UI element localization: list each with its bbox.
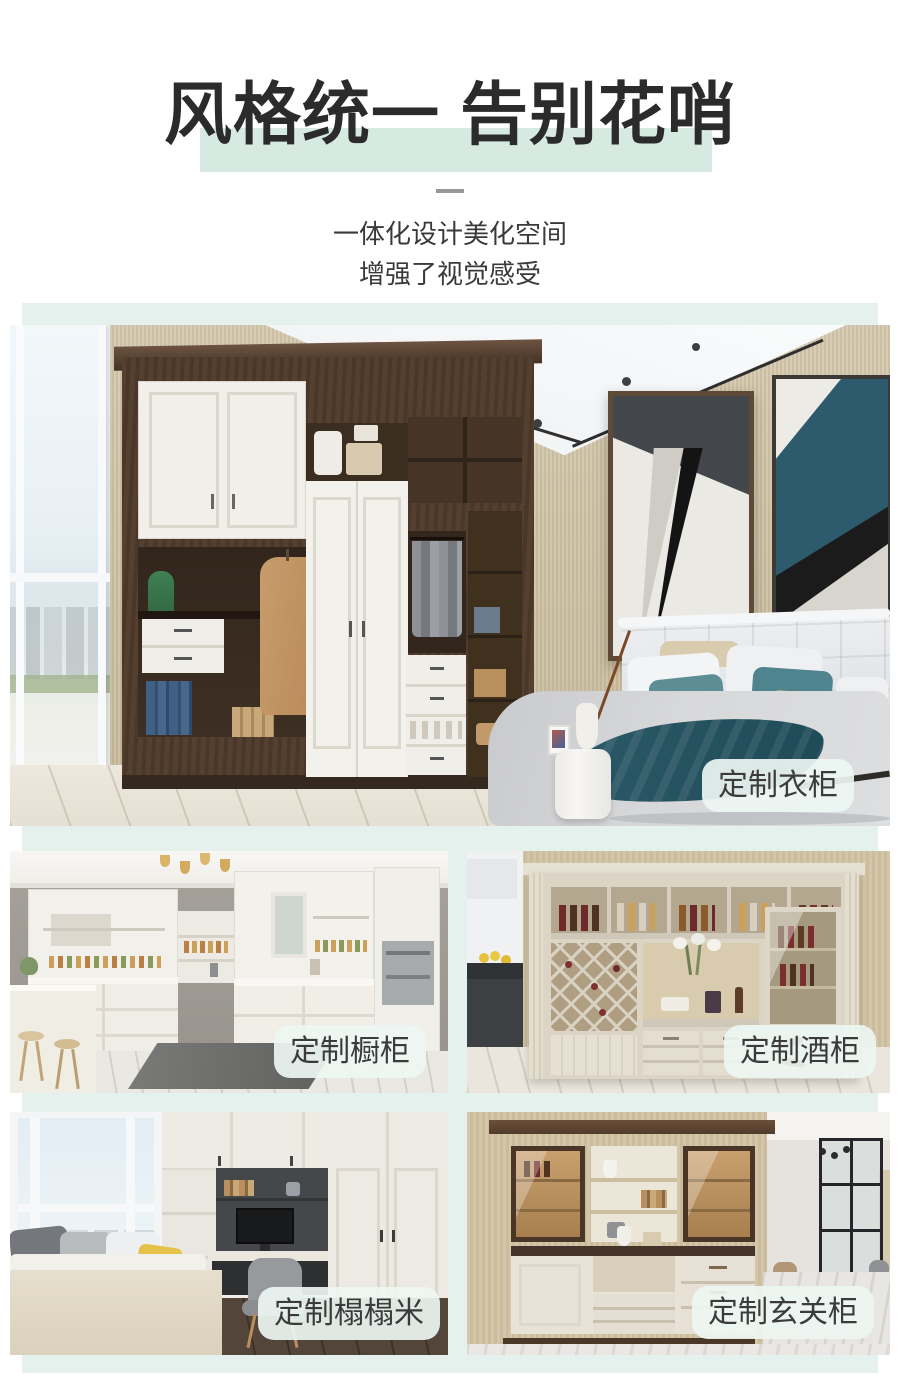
wine-bottle-dot [565, 961, 572, 968]
counter-decor [310, 959, 320, 975]
pendant-light [160, 855, 170, 867]
shelf-line [216, 1198, 328, 1201]
drawer-divider [142, 645, 224, 648]
pendant-light [220, 859, 230, 872]
drawer-handle [430, 697, 444, 700]
bar-stool [18, 1031, 44, 1041]
shelf-line [178, 959, 234, 962]
glass-display-cabinet [765, 907, 841, 1029]
door-handle [218, 1156, 221, 1166]
display-niche [643, 943, 759, 1019]
shelf-decor [286, 1182, 300, 1196]
subtitle-line-1: 一体化设计美化空间 [0, 214, 900, 251]
lower-door-panel [519, 1264, 581, 1326]
photo-card-entry: 定制玄关柜 [467, 1112, 890, 1355]
drawer-unit-right [406, 655, 466, 775]
open-shelves-center [591, 1146, 677, 1242]
door-split [230, 1112, 233, 1170]
label-badge-kitchen: 定制橱柜 [274, 1025, 426, 1078]
lemons [479, 953, 489, 963]
rug [610, 812, 890, 825]
shelf-divider [607, 887, 611, 933]
cubby-shelf [468, 571, 522, 574]
cubby-shelves [408, 417, 522, 503]
decor-item [661, 997, 689, 1011]
glass-partition [819, 1138, 883, 1278]
door-split [302, 1112, 305, 1170]
shelf-rail [313, 916, 369, 919]
label-badge-wardrobe: 定制衣柜 [702, 759, 854, 812]
shelf-books [474, 607, 500, 633]
coat-hanger [286, 549, 289, 561]
photo-card-wine: 定制酒柜 [467, 851, 890, 1093]
window [10, 325, 110, 785]
floor [467, 1344, 890, 1355]
decor-books [641, 1190, 667, 1208]
door-handle [362, 621, 365, 637]
black-counter [467, 963, 523, 979]
spice-jars [184, 941, 228, 953]
oven-handle [386, 951, 430, 955]
upper-cabinets-right [234, 871, 374, 983]
drawer-handle [663, 1037, 679, 1040]
drawer-handle [709, 1266, 727, 1269]
drawer-handle [174, 657, 192, 660]
upper-cabinets-left [28, 889, 178, 981]
drawer-handle [174, 629, 192, 632]
drawer-handle [430, 757, 444, 760]
flower-stems [685, 945, 692, 975]
door-handle [380, 1230, 383, 1242]
cubby-shelf [468, 635, 522, 638]
spotlight [692, 343, 700, 351]
door-handle [290, 1156, 293, 1166]
monitor [236, 1208, 294, 1244]
hall-ceiling [767, 1112, 890, 1140]
center-cabinet [306, 481, 408, 777]
wardrobe-door-panel [394, 1168, 438, 1300]
counter-decor [643, 1232, 661, 1246]
window-mullion [18, 1204, 154, 1212]
window-mullion [16, 325, 24, 785]
drawer-line [593, 1320, 675, 1323]
drawer-line [681, 1281, 755, 1284]
glimpse-cabinet [467, 859, 517, 899]
shelf-line [591, 1178, 677, 1182]
label-badge-entry: 定制玄关柜 [692, 1286, 874, 1339]
shelf-books [224, 1180, 254, 1196]
shelf-divider [667, 887, 671, 933]
door-handle [211, 494, 214, 509]
books-blue [146, 681, 192, 735]
tatami-platform [10, 1270, 222, 1355]
wardrobe-door-panel [336, 1168, 380, 1300]
spotlight [622, 377, 631, 386]
shelf-rail [43, 928, 165, 931]
bedroom-illustration [10, 325, 890, 826]
drawer-line [643, 1045, 699, 1048]
shelf-books [474, 669, 506, 697]
window-mullion [98, 325, 106, 785]
photo-card-kitchen: 定制橱柜 [10, 851, 448, 1093]
partition-bar [822, 1183, 880, 1186]
pilaster [529, 873, 543, 1079]
glass-cabinet-right [683, 1146, 755, 1242]
spice-jars [315, 940, 367, 952]
page-title: 风格统一 告别花哨 [0, 78, 900, 153]
oven-drawer-line [386, 975, 430, 979]
spice-jars [49, 956, 161, 968]
wine-bottles [559, 905, 599, 931]
wine-lattice-rack [551, 943, 637, 1031]
glass-door [271, 892, 307, 958]
photo-card-tatami: 定制榻榻米 [10, 1112, 448, 1355]
hanging-clothes [412, 541, 462, 637]
cabinet-door-panel [313, 497, 351, 749]
drawer-divider [406, 744, 466, 747]
label-badge-tatami: 定制榻榻米 [258, 1287, 440, 1340]
storage-box [354, 425, 378, 441]
drawer-divider [406, 684, 466, 687]
drawer-line [593, 1307, 675, 1310]
hero-header: 风格统一 告别花哨 一体化设计美化空间 增强了视觉感受 [0, 0, 900, 303]
clothes-rail [410, 537, 464, 540]
cubby-shelf [408, 458, 522, 462]
glass-sheen [770, 912, 836, 1024]
bar-stool [54, 1039, 80, 1049]
door-handle [232, 494, 235, 509]
center-niche [593, 1256, 675, 1292]
storage-hatbox [314, 431, 342, 475]
counter-plant [20, 957, 38, 975]
nightstand [555, 749, 611, 819]
window-mullion [10, 573, 110, 582]
cabinet-door-panel [363, 497, 401, 749]
glass-cabinet-left [511, 1146, 585, 1242]
cabinet-counter [511, 1246, 755, 1256]
flower-blossoms [673, 937, 687, 949]
label-badge-wine: 定制酒柜 [724, 1025, 876, 1078]
counter-decor [210, 963, 218, 977]
shelf-line [591, 1210, 677, 1214]
spotlight [533, 419, 542, 428]
door-handle [392, 1230, 395, 1242]
counter-vase [617, 1226, 631, 1246]
wardrobe-plinth [122, 775, 534, 789]
decor-bottle [735, 987, 743, 1013]
corner-shelves [178, 911, 234, 983]
door-split [356, 481, 358, 777]
decor-pot [603, 1160, 617, 1178]
rack-lower-door [551, 1035, 637, 1075]
wine-bottles [617, 903, 655, 931]
chandelier [819, 1148, 826, 1155]
drawer-divider [406, 714, 466, 717]
drawer-unit-left [142, 619, 224, 673]
partition-bar [822, 1229, 880, 1232]
partition-bar [850, 1141, 853, 1275]
shelf-divider [727, 887, 731, 933]
shelf-line [178, 935, 234, 938]
title-divider [436, 189, 464, 193]
drawer-stripe [410, 721, 462, 739]
cabinet-door-panel [149, 392, 219, 528]
door-handle [349, 621, 352, 637]
dark-base-cabinet [467, 979, 523, 1049]
drawer-stack [643, 1031, 699, 1075]
drawer-line [162, 1212, 216, 1215]
center-drawers [593, 1294, 675, 1334]
subtitle-line-2: 增强了视觉感受 [0, 254, 900, 291]
counter-left [28, 977, 178, 984]
cabinet-door-panel [227, 392, 297, 528]
upper-cabinet [138, 381, 306, 539]
lamp-vase [576, 703, 598, 749]
glass-sheen [516, 1151, 580, 1237]
photo-frame-art [552, 730, 565, 748]
decor-item [705, 991, 721, 1013]
flower-stems [695, 943, 701, 975]
trees [10, 675, 110, 693]
drawer-line [643, 1060, 699, 1063]
wall-oven [382, 941, 434, 1005]
drawer-handle [430, 667, 444, 670]
wine-bottles [679, 905, 715, 931]
counter-right [234, 979, 374, 986]
glass-sheen [688, 1151, 750, 1237]
storage-box [346, 443, 382, 475]
pendant-light [200, 853, 210, 865]
city-skyline [10, 607, 110, 679]
photo-card-wardrobe: 定制衣柜 [10, 325, 890, 826]
pendant-light [180, 861, 190, 874]
monitor-stand [260, 1244, 270, 1251]
